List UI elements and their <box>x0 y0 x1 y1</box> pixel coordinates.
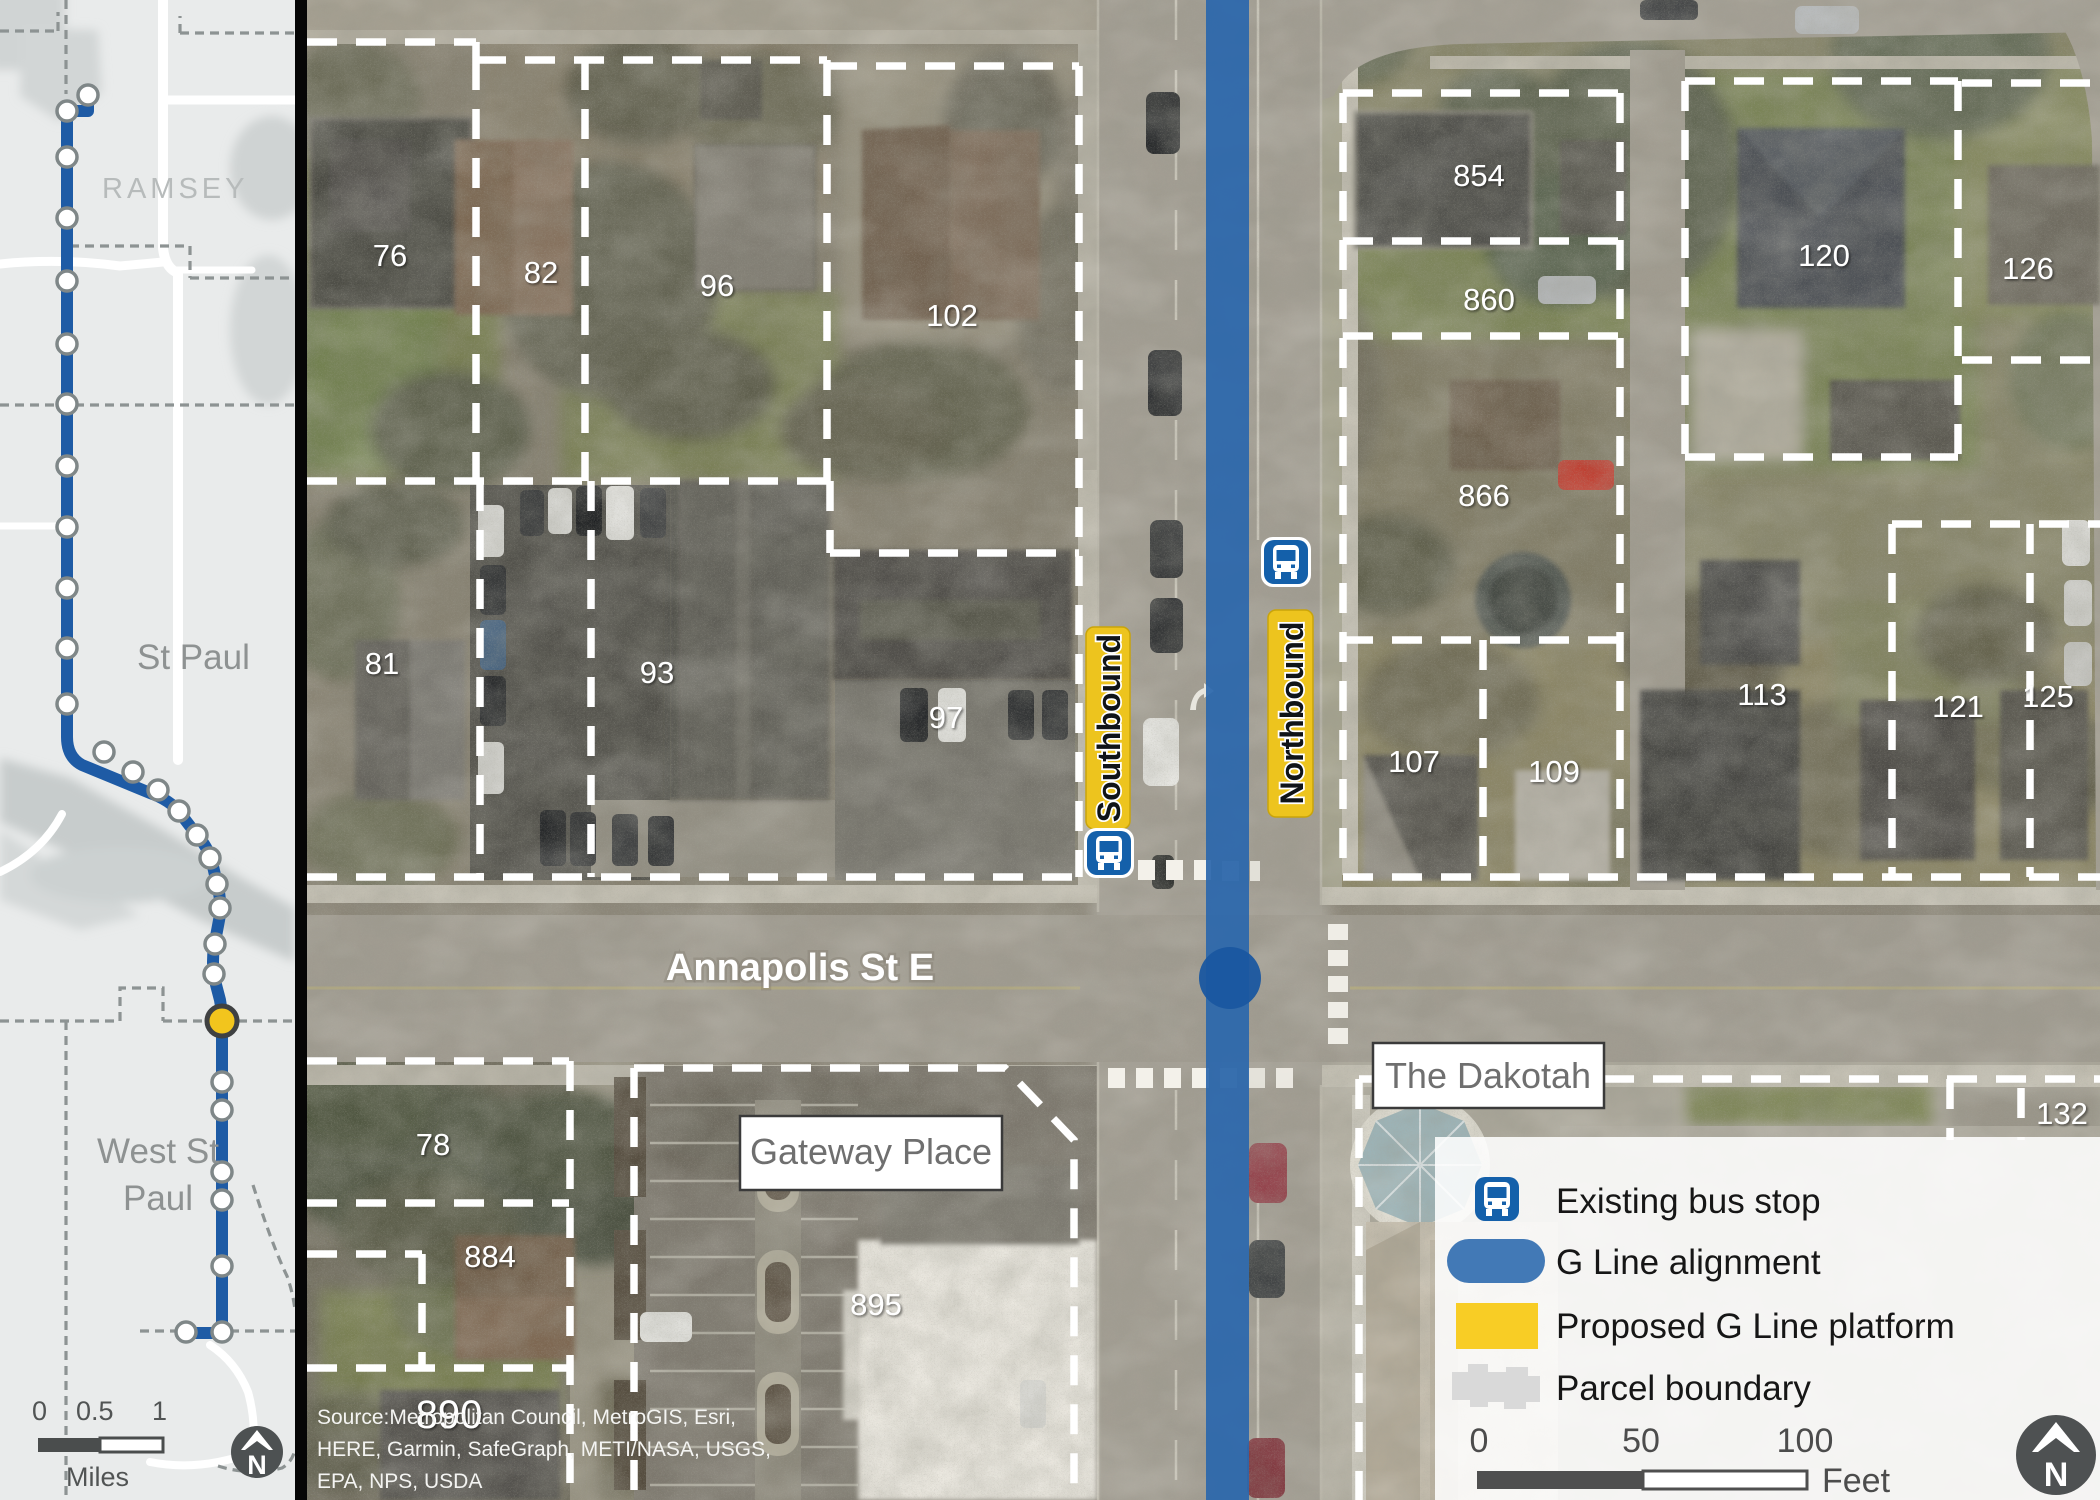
svg-text:St Paul: St Paul <box>137 638 250 677</box>
svg-text:0: 0 <box>32 1396 47 1426</box>
svg-text:HERE, Garmin, SafeGraph, METI/: HERE, Garmin, SafeGraph, METI/NASA, USGS… <box>317 1438 771 1461</box>
svg-text:102: 102 <box>926 298 978 333</box>
svg-text:Existing bus stop: Existing bus stop <box>1556 1182 1821 1221</box>
svg-text:West St: West St <box>97 1132 219 1171</box>
svg-text:76: 76 <box>373 238 407 273</box>
svg-text:125: 125 <box>2022 679 2074 714</box>
svg-text:N: N <box>247 1450 267 1480</box>
svg-text:97: 97 <box>929 700 963 735</box>
svg-text:RAMSEY: RAMSEY <box>102 173 248 205</box>
svg-text:Feet: Feet <box>1822 1462 1891 1500</box>
svg-text:0.5: 0.5 <box>76 1396 114 1426</box>
svg-text:81: 81 <box>365 646 399 681</box>
svg-text:G Line alignment: G Line alignment <box>1556 1243 1821 1282</box>
svg-text:100: 100 <box>1777 1422 1834 1460</box>
svg-text:The Dakotah: The Dakotah <box>1385 1055 1591 1096</box>
svg-text:884: 884 <box>464 1239 516 1274</box>
svg-text:854: 854 <box>1453 158 1505 193</box>
svg-text:Paul: Paul <box>123 1179 193 1218</box>
svg-text:50: 50 <box>1622 1422 1660 1460</box>
svg-text:96: 96 <box>700 268 734 303</box>
svg-text:113: 113 <box>1737 677 1786 712</box>
svg-text:82: 82 <box>524 255 558 290</box>
svg-text:866: 866 <box>1458 478 1510 513</box>
svg-text:EPA, NPS, USDA: EPA, NPS, USDA <box>317 1470 482 1493</box>
svg-text:0: 0 <box>1470 1422 1489 1460</box>
svg-text:860: 860 <box>1463 282 1515 317</box>
svg-text:Parcel boundary: Parcel boundary <box>1556 1369 1811 1408</box>
svg-text:109: 109 <box>1528 754 1580 789</box>
svg-text:121: 121 <box>1932 689 1984 724</box>
svg-text:Southbound: Southbound <box>1091 634 1127 822</box>
svg-text:N: N <box>2044 1456 2069 1494</box>
svg-text:93: 93 <box>640 655 674 690</box>
svg-text:Annapolis St E: Annapolis St E <box>666 947 934 989</box>
svg-text:Gateway Place: Gateway Place <box>750 1131 992 1172</box>
svg-text:Source:Metropolitan Council, M: Source:Metropolitan Council, MetroGIS, E… <box>317 1406 736 1429</box>
svg-text:Proposed G Line platform: Proposed G Line platform <box>1556 1307 1955 1346</box>
svg-text:1: 1 <box>152 1396 167 1426</box>
svg-text:132: 132 <box>2036 1096 2088 1131</box>
svg-text:107: 107 <box>1388 744 1440 779</box>
svg-text:78: 78 <box>416 1127 450 1162</box>
svg-text:120: 120 <box>1798 238 1850 273</box>
svg-text:Northbound: Northbound <box>1274 621 1310 804</box>
svg-text:Miles: Miles <box>66 1462 129 1492</box>
svg-text:126: 126 <box>2002 251 2054 286</box>
svg-text:895: 895 <box>850 1287 902 1322</box>
